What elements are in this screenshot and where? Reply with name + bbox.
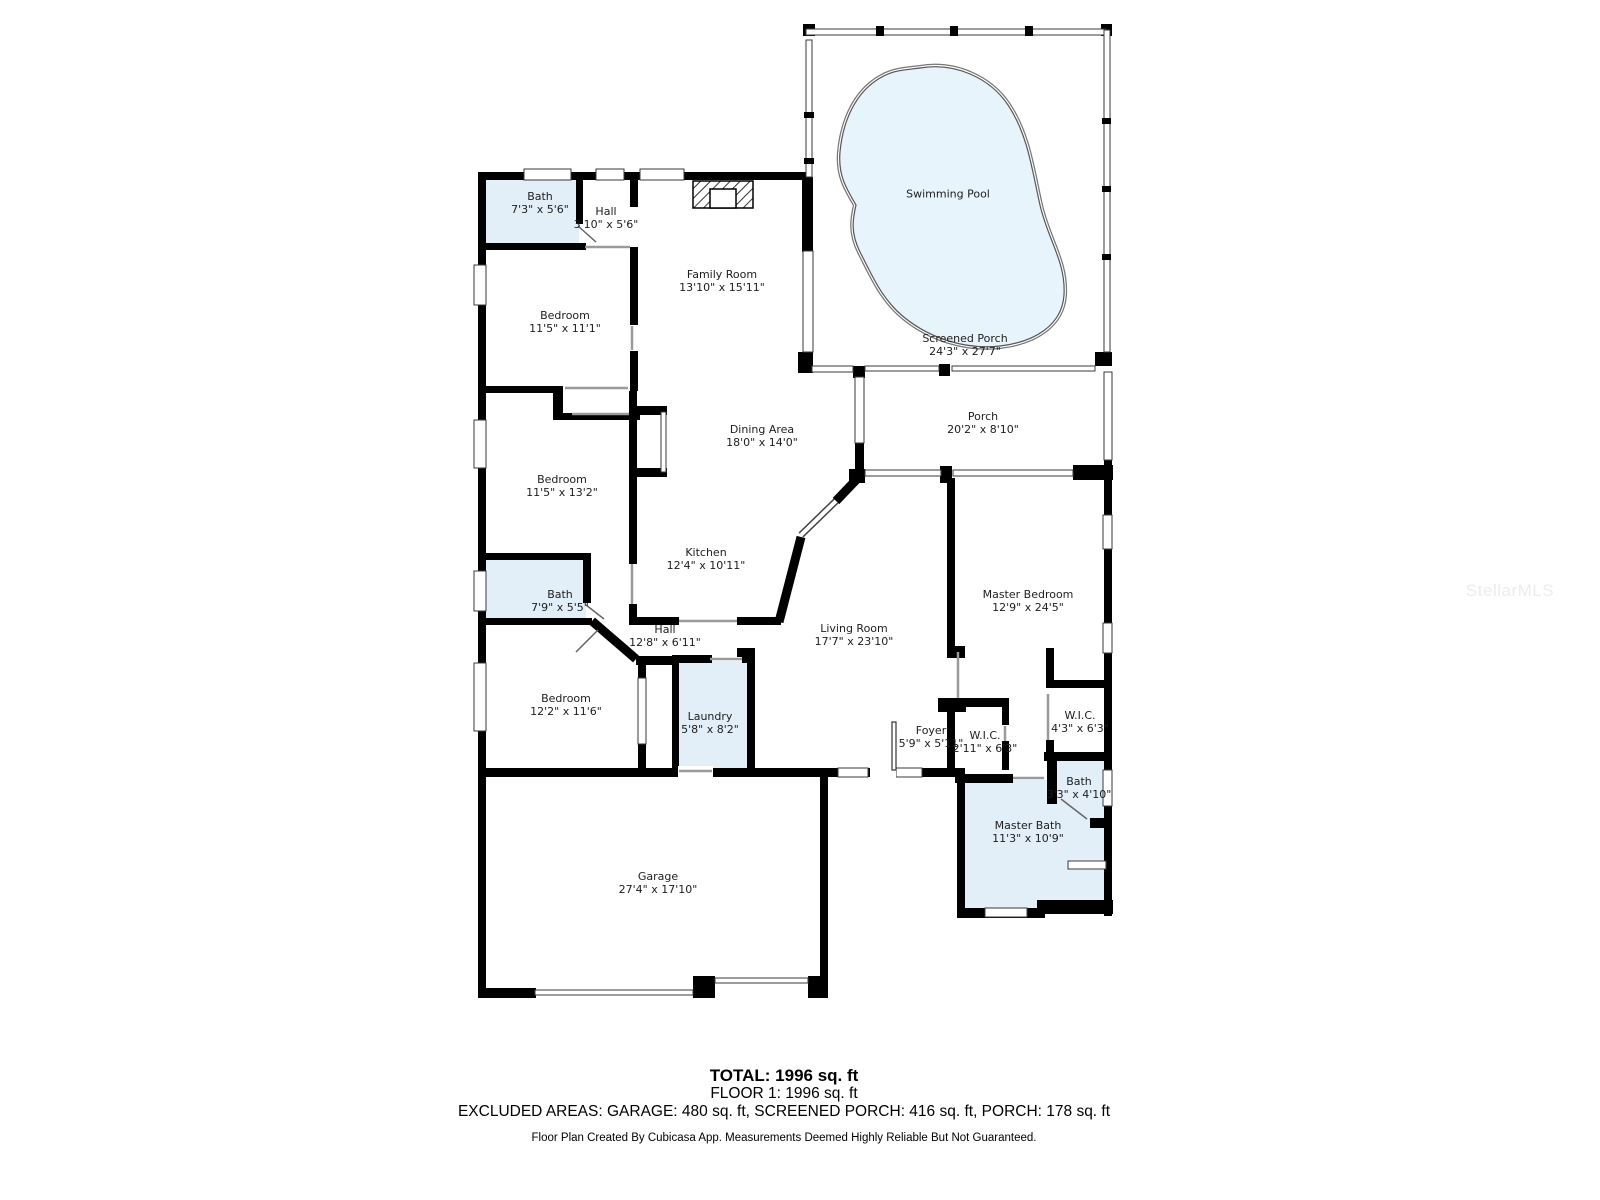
room-label-hall-2: Hall12'8" x 6'11" <box>629 623 701 649</box>
room-label-kitchen: Kitchen12'4" x 10'11" <box>667 546 746 572</box>
room-label-garage: Garage27'4" x 17'10" <box>619 870 698 896</box>
room-label-dining-area: Dining Area18'0" x 14'0" <box>726 423 798 449</box>
room-label-master-bedroom: Master Bedroom12'9" x 24'5" <box>983 588 1074 614</box>
room-label-bath-1: Bath7'3" x 5'6" <box>511 190 569 216</box>
room-label-wic-large: W.I.C.4'3" x 6'3" <box>1051 709 1109 735</box>
room-label-wic-small: W.I.C.2'11" x 6'3" <box>953 729 1018 755</box>
room-label-bedroom-1: Bedroom11'5" x 11'1" <box>529 309 601 335</box>
summary-total: TOTAL: 1996 sq. ft <box>458 1066 1110 1085</box>
room-label-family-room: Family Room13'10" x 15'11" <box>679 268 765 294</box>
room-label-living-room: Living Room17'7" x 23'10" <box>815 622 894 648</box>
room-label-bedroom-2: Bedroom11'5" x 13'2" <box>526 473 598 499</box>
swimming-pool-shape <box>840 67 1064 347</box>
summary-floor: FLOOR 1: 1996 sq. ft <box>458 1085 1110 1103</box>
fireplace-icon <box>693 181 753 208</box>
room-label-bath-2: Bath7'9" x 5'5" <box>531 588 589 614</box>
room-label-bath-3: Bath3'3" x 4'10" <box>1047 775 1112 801</box>
summary-excluded: EXCLUDED AREAS: GARAGE: 480 sq. ft, SCRE… <box>458 1103 1110 1121</box>
angled-window <box>801 501 836 535</box>
floorplan-canvas <box>0 0 1600 1200</box>
room-label-porch: Porch20'2" x 8'10" <box>947 410 1019 436</box>
entry-door-leaf <box>892 722 896 770</box>
floorplan-page: Bath7'3" x 5'6" Hall3'10" x 5'6" Bedroom… <box>0 0 1600 1200</box>
room-label-master-bath: Master Bath11'3" x 10'9" <box>992 819 1064 845</box>
summary-disclaimer: Floor Plan Created By Cubicasa App. Meas… <box>458 1131 1110 1145</box>
room-label-bedroom-3: Bedroom12'2" x 11'6" <box>530 692 602 718</box>
room-label-laundry: Laundry5'8" x 8'2" <box>681 710 739 736</box>
summary-block: TOTAL: 1996 sq. ft FLOOR 1: 1996 sq. ft … <box>458 1066 1110 1145</box>
room-label-screened-porch: Screened Porch24'3" x 27'7" <box>922 332 1007 358</box>
room-label-swimming-pool: Swimming Pool <box>906 188 990 201</box>
room-label-hall-1: Hall3'10" x 5'6" <box>574 205 639 231</box>
stellar-mls-watermark: StellarMLS <box>1466 581 1554 601</box>
